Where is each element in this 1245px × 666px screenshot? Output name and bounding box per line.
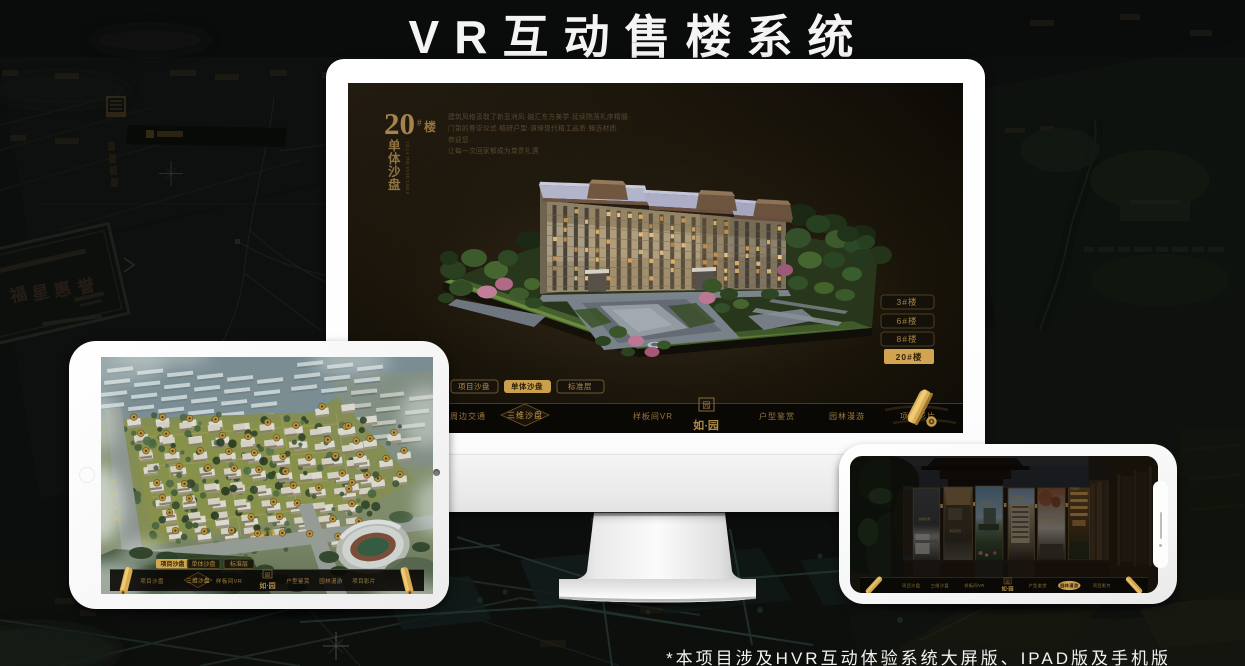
svg-text:园林漫游: 园林漫游 — [829, 411, 865, 421]
svg-text:园林漫游: 园林漫游 — [319, 577, 343, 585]
svg-text:沙: 沙 — [388, 165, 401, 179]
svg-text:三维沙盘: 三维沙盘 — [931, 582, 950, 589]
svg-text:标准层: 标准层 — [230, 560, 248, 568]
svg-text:楼: 楼 — [424, 119, 436, 134]
svg-text:6#楼: 6#楼 — [897, 316, 918, 326]
svg-text:3#楼: 3#楼 — [897, 297, 918, 307]
svg-text:门第的尊崇仪式·精研户型·演绎现代精工品质·臻选材质·: 门第的尊崇仪式·精研户型·演绎现代精工品质·臻选材质· — [448, 124, 619, 133]
svg-text:20#楼: 20#楼 — [896, 352, 923, 362]
svg-text:三维沙盘: 三维沙盘 — [186, 577, 210, 585]
svg-text:如·园: 如·园 — [693, 418, 719, 432]
svg-text:样板间VR: 样板间VR — [633, 411, 673, 421]
svg-text:#: # — [417, 118, 422, 128]
svg-text:标准层: 标准层 — [568, 381, 592, 391]
svg-text:户型鉴赏: 户型鉴赏 — [759, 411, 795, 421]
svg-text:项目影片: 项目影片 — [1093, 582, 1111, 589]
svg-text:体: 体 — [388, 151, 401, 166]
svg-text:如·园: 如·园 — [259, 581, 275, 590]
svg-text:单: 单 — [388, 138, 401, 153]
svg-text:样板间VR: 样板间VR — [964, 582, 984, 589]
svg-text:项目影片: 项目影片 — [352, 577, 376, 585]
svg-text:项目沙盘: 项目沙盘 — [458, 381, 490, 391]
svg-text:8#楼: 8#楼 — [897, 334, 918, 344]
svg-text:单体沙盘: 单体沙盘 — [191, 560, 215, 568]
svg-text:项目沙盘: 项目沙盘 — [160, 560, 184, 568]
svg-text:项目沙盘: 项目沙盘 — [140, 577, 164, 585]
svg-text:户型鉴赏: 户型鉴赏 — [1028, 582, 1046, 589]
svg-text:项目沙盘: 项目沙盘 — [902, 582, 921, 589]
svg-text:园林漫游: 园林漫游 — [1060, 582, 1079, 589]
svg-text:园: 园 — [265, 573, 270, 579]
svg-text:周边交通: 周边交通 — [450, 411, 486, 421]
svg-text:20: 20 — [384, 106, 415, 141]
svg-text:建筑风格汲取了新亚洲风·融汇东方美学·延续院落礼序精髓·: 建筑风格汲取了新亚洲风·融汇东方美学·延续院落礼序精髓· — [448, 112, 631, 121]
svg-text:如·园: 如·园 — [1002, 586, 1014, 593]
svg-text:恭迎您·: 恭迎您· — [448, 135, 472, 144]
svg-text:三维沙盘: 三维沙盘 — [507, 410, 543, 420]
svg-text:盘: 盘 — [388, 177, 401, 192]
svg-text:VILLA THE SAND TABLE: VILLA THE SAND TABLE — [405, 141, 410, 195]
svg-text:户型鉴赏: 户型鉴赏 — [286, 577, 310, 585]
svg-text:单体沙盘: 单体沙盘 — [511, 381, 543, 391]
svg-text:园: 园 — [1006, 578, 1010, 584]
svg-text:让每一次回家都成为尊贵礼遇: 让每一次回家都成为尊贵礼遇 — [448, 146, 539, 155]
svg-text:样板间VR: 样板间VR — [216, 577, 242, 585]
svg-text:园: 园 — [703, 401, 711, 410]
